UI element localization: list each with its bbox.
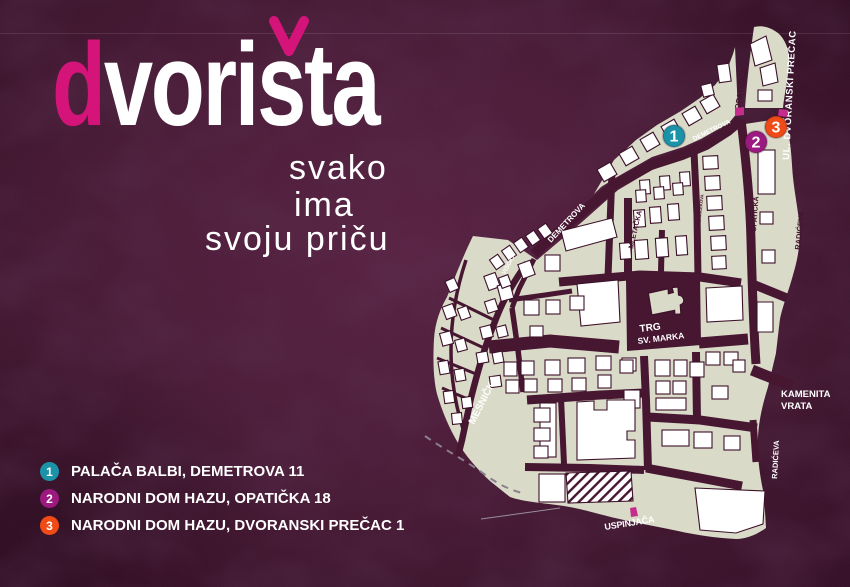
svg-text:1: 1 [670, 129, 679, 146]
svg-text:2: 2 [752, 135, 761, 152]
svg-text:VRATA: VRATA [781, 401, 812, 412]
svg-text:3: 3 [772, 120, 781, 137]
svg-text:KAMENITA: KAMENITA [781, 389, 831, 400]
svg-text:RADIĆEVA: RADIĆEVA [770, 439, 781, 479]
